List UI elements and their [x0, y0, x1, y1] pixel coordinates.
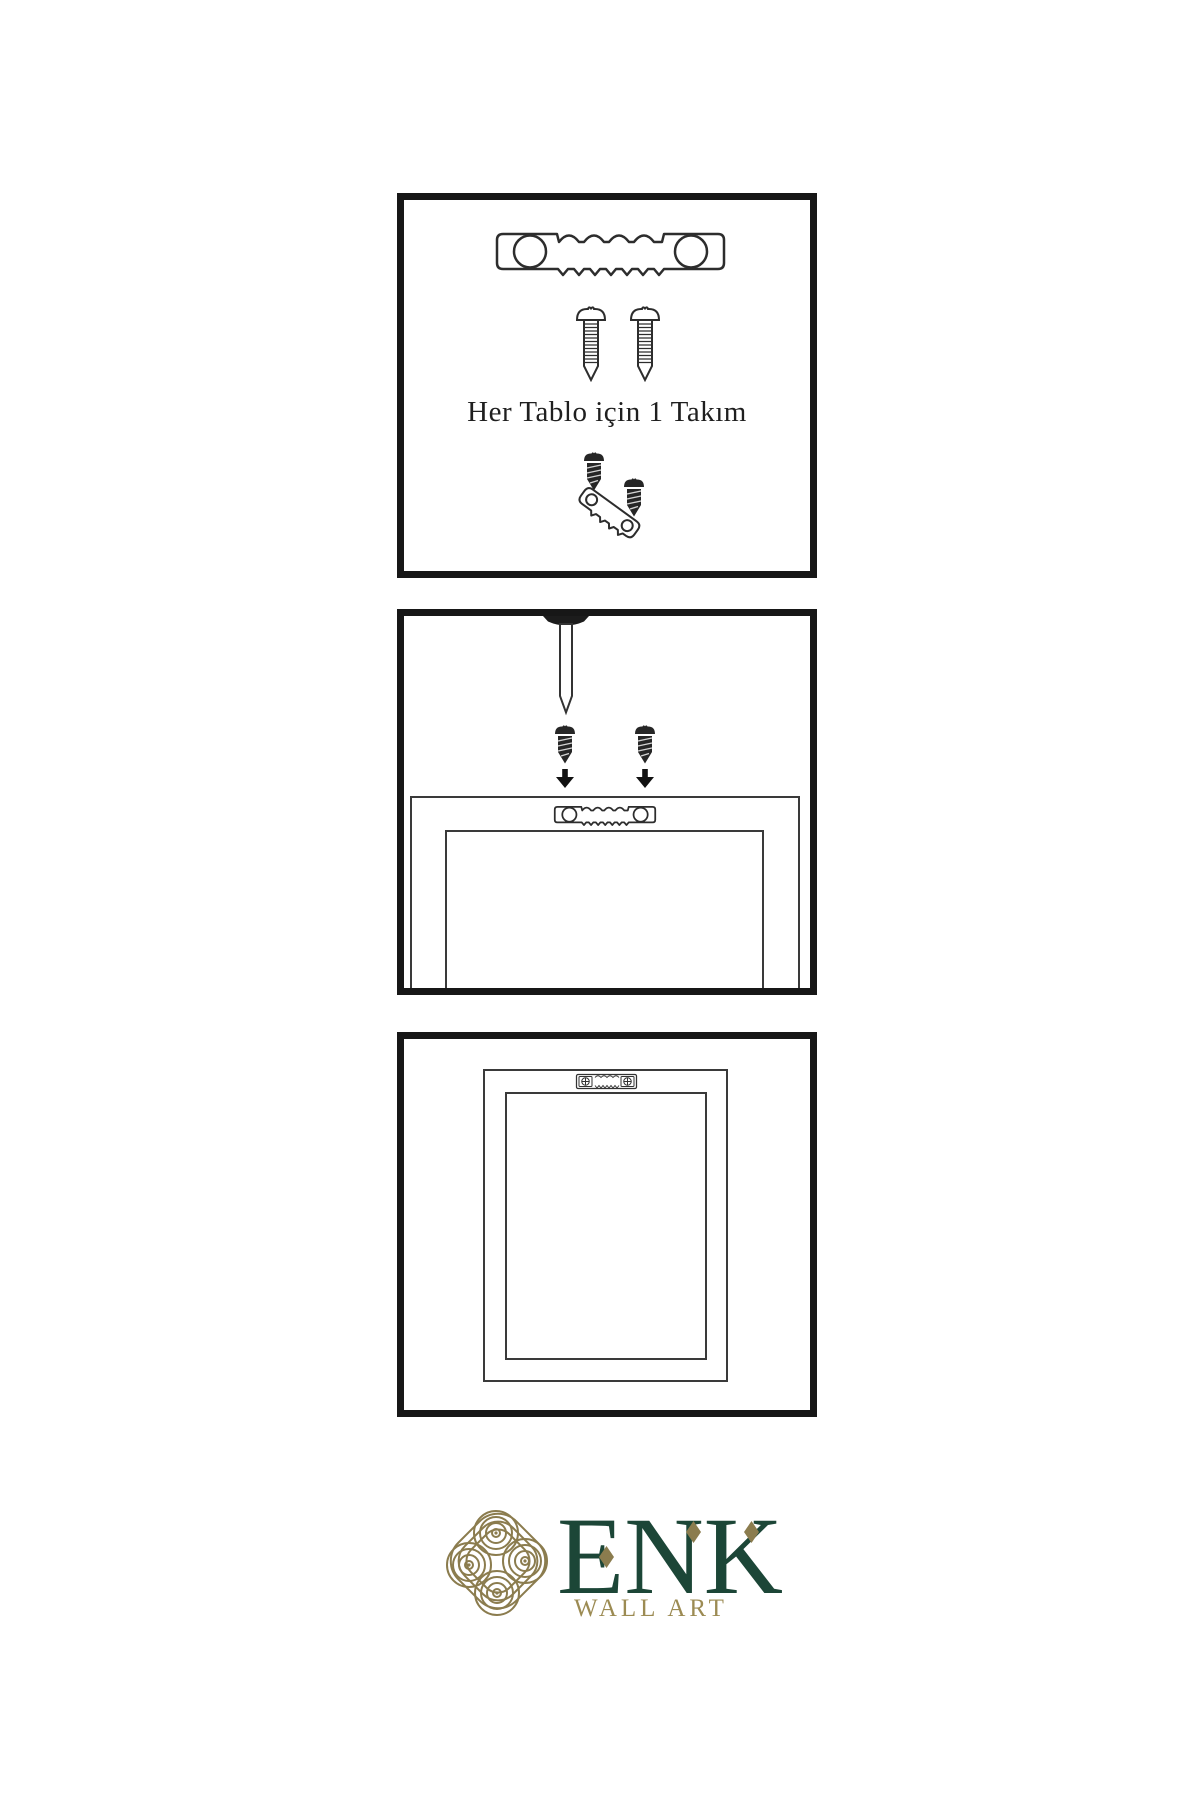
- brand-subtitle: WALL ART: [574, 1596, 728, 1621]
- panel-hanging-result: [397, 1032, 817, 1417]
- dark-screw-icon: [631, 725, 659, 789]
- panel-hardware-kit: Her Tablo için 1 Takım: [397, 193, 817, 578]
- down-arrow-icon: [556, 769, 574, 788]
- sawtooth-hanger-icon: [553, 802, 657, 826]
- picture-frame-back-inner: [505, 1092, 707, 1360]
- down-arrow-icon: [636, 769, 654, 788]
- dark-screw-icon: [624, 478, 644, 516]
- sawtooth-hanger-icon: [493, 223, 728, 277]
- knot-logo-icon: [437, 1492, 561, 1628]
- tilted-sawtooth-hanger-icon: [576, 452, 660, 550]
- panel-wall-installation: [397, 609, 817, 995]
- picture-frame-back-inner: [445, 830, 764, 988]
- dark-screw-icon: [584, 452, 604, 490]
- dark-screw-icon: [551, 725, 579, 789]
- nail-icon: [543, 616, 589, 716]
- mounted-sawtooth-hanger-icon: [575, 1073, 638, 1090]
- screw-icon: [627, 306, 663, 382]
- screw-icon: [573, 306, 609, 382]
- instruction-sheet: { "title": "Wall art hanging instruction…: [0, 0, 1200, 1800]
- kit-caption: Her Tablo için 1 Takım: [404, 396, 810, 429]
